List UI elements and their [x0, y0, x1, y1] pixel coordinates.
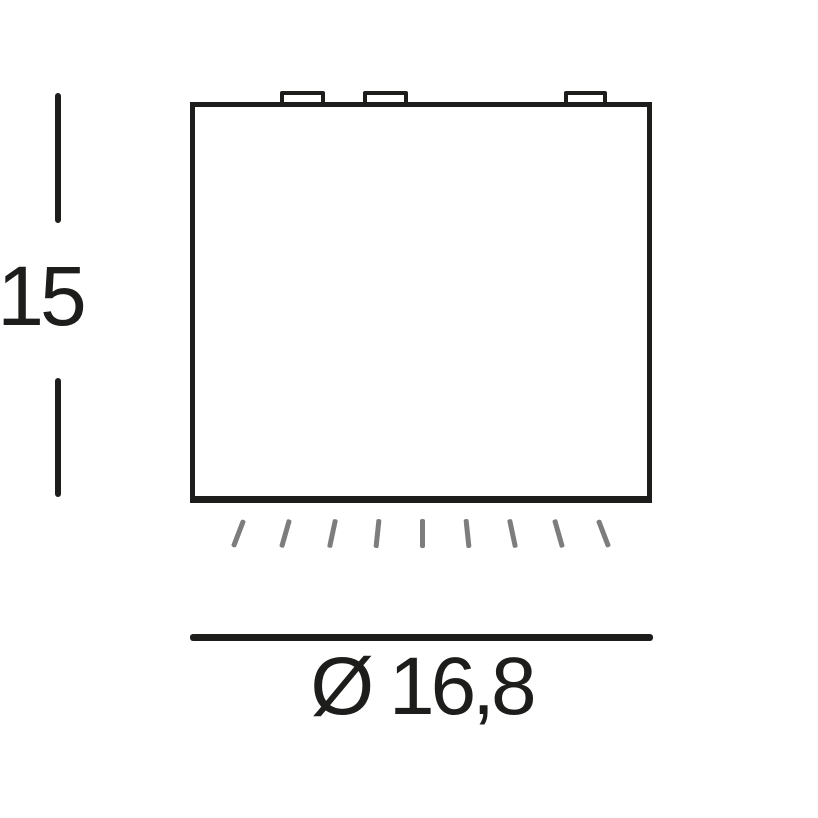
diameter-dimension-label: Ø 16,8	[190, 646, 653, 728]
light-ray	[507, 519, 518, 548]
light-ray	[463, 519, 471, 548]
light-ray	[420, 519, 425, 548]
light-ray	[327, 519, 338, 548]
mounting-tab	[363, 91, 408, 106]
light-ray	[596, 519, 611, 548]
height-dimension-label: 15	[0, 254, 94, 338]
mounting-tab	[564, 91, 607, 106]
light-ray	[552, 519, 565, 548]
technical-drawing: 15 Ø 16,8	[0, 0, 818, 818]
mounting-tab	[280, 91, 325, 106]
light-ray	[373, 519, 381, 548]
light-ray	[279, 519, 292, 548]
lamp-body-outline	[190, 102, 652, 503]
light-ray	[231, 519, 246, 548]
diameter-dimension-line	[190, 634, 653, 641]
height-dimension-line-bottom	[55, 378, 61, 497]
height-dimension-line-top	[55, 93, 61, 223]
